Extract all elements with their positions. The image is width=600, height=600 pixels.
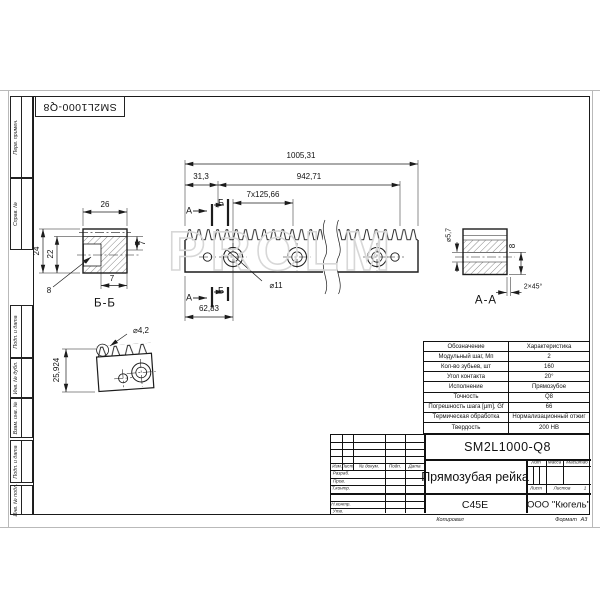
dim-hole-pitch: 7x125,66: [247, 191, 280, 199]
spec-cell-label: Точность: [424, 393, 509, 403]
tb-col-sign: Подп.: [389, 464, 401, 469]
spec-cell-value: 160: [509, 362, 589, 372]
dim-left-offset: 31,3: [193, 173, 209, 181]
spec-cell-label: Исполнение: [424, 382, 509, 392]
spec-cell-value: 20°: [509, 372, 589, 382]
dim-a-hole-dia: ⌀5,7: [446, 228, 453, 242]
dim-first-hole: 62,83: [199, 305, 219, 313]
tb-row-nkontr: Н.контр.: [331, 502, 350, 507]
spec-cell-label: Твердость: [424, 423, 509, 433]
tb-material: C45E: [462, 500, 488, 511]
tb-mass: Масса: [548, 460, 562, 465]
dim-hole-dia: ⌀11: [269, 282, 282, 290]
tb-designation: SM2L1000-Q8: [464, 441, 551, 454]
tb-col-izm: Изм: [332, 464, 341, 469]
tb-col-list: Лист: [342, 464, 354, 469]
cut-label-b-top: Б: [218, 199, 224, 208]
tb-sheet: Лист: [530, 486, 542, 491]
leader-b-8: 8: [47, 287, 51, 295]
format-value: А3: [581, 517, 588, 523]
dim-b-width: 26: [101, 201, 110, 209]
tb-col-doc: № докум.: [359, 464, 379, 469]
tb-sheets: Листов: [554, 486, 571, 491]
tb-row-tkontr: Т.контр.: [332, 487, 351, 492]
detail-view: [62, 334, 157, 392]
spec-cell-value: 200 НВ: [509, 423, 589, 433]
spec-cell-value: Прямозубое: [509, 382, 589, 392]
tb-company: ООО "Кюгель": [527, 500, 590, 510]
spec-cell-value: Q8: [509, 393, 589, 403]
dim-b-depth-bottom: 7: [110, 275, 114, 283]
cut-label-a-top: А: [186, 207, 192, 216]
title-block: Изм Лист № докум. Подп. Дата Разраб. Про…: [330, 434, 590, 515]
dim-b-depth-right: 7: [139, 241, 147, 245]
spec-header-value: Характеристика: [509, 342, 589, 352]
dim-b-height: 24: [33, 247, 41, 256]
tb-lit: Лит: [531, 460, 541, 465]
spec-table: Обозначение Характеристика Модульный шаг…: [423, 341, 590, 434]
watermark: PROLM: [168, 218, 395, 283]
section-a-view: [452, 229, 526, 296]
dim-a-height: 8: [509, 244, 517, 248]
copied-label: Копировал: [436, 517, 463, 523]
tb-sheets-value: 1: [584, 486, 587, 491]
spec-header-label: Обозначение: [424, 342, 509, 352]
tb-col-date: Дата: [408, 464, 420, 469]
spec-cell-label: Термическая обработка: [424, 413, 509, 423]
tb-row-utv: Утв.: [333, 510, 343, 515]
dim-detail-height: 25,924: [53, 358, 61, 382]
tb-row-prov: Пров.: [333, 479, 345, 484]
dim-a-chamfer: 2×45°: [524, 284, 543, 291]
dim-right-span: 942,71: [297, 173, 321, 181]
section-b-label: Б-Б: [94, 298, 116, 310]
section-a-label: А-А: [475, 295, 497, 307]
spec-cell-value: Нормализационный отжиг: [509, 413, 589, 423]
format-label: Формат: [555, 517, 577, 523]
spec-cell-label: Угол контакта: [424, 372, 509, 382]
cut-label-b-bottom: Б: [218, 287, 224, 296]
extension-lines: [62, 349, 96, 392]
cut-label-a-bottom: А: [186, 294, 192, 303]
dim-b-hole-height: 22: [47, 250, 55, 259]
spec-cell-value: 66: [509, 403, 589, 413]
spec-cell-value: 2: [509, 352, 589, 362]
spec-cell-label: Погрешность шага [µm], Gf: [424, 403, 509, 413]
spec-cell-label: Кол-во зубьев, шт: [424, 362, 509, 372]
tb-part-name: Прямозубая рейка: [421, 470, 529, 483]
dim-total-length: 1005,31: [287, 152, 316, 160]
spec-cell-label: Модульный шаг, Мп: [424, 352, 509, 362]
dim-detail-tip-dia: ⌀4,2: [133, 327, 149, 335]
tip-dia-leader: [110, 334, 127, 346]
drawing-sheet: Перв. примен. Справ. № Подп. и дата Инв.…: [0, 0, 600, 600]
tb-row-razrab: Разраб.: [333, 472, 350, 477]
tb-scale: Масштаб: [566, 460, 587, 465]
